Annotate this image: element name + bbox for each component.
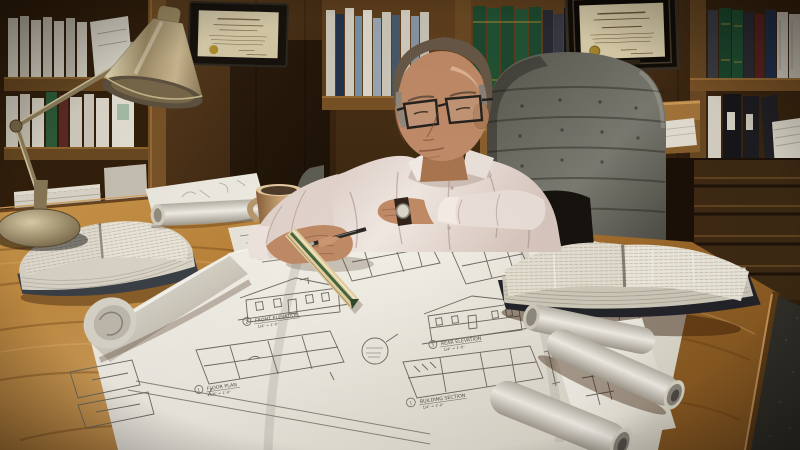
photo-scene: 2 FRONT ELEVATION 1/4" = 1'-0" 3 REAR EL…	[0, 0, 800, 450]
vignette	[0, 0, 800, 450]
office-photo: 2 FRONT ELEVATION 1/4" = 1'-0" 3 REAR EL…	[0, 0, 800, 450]
